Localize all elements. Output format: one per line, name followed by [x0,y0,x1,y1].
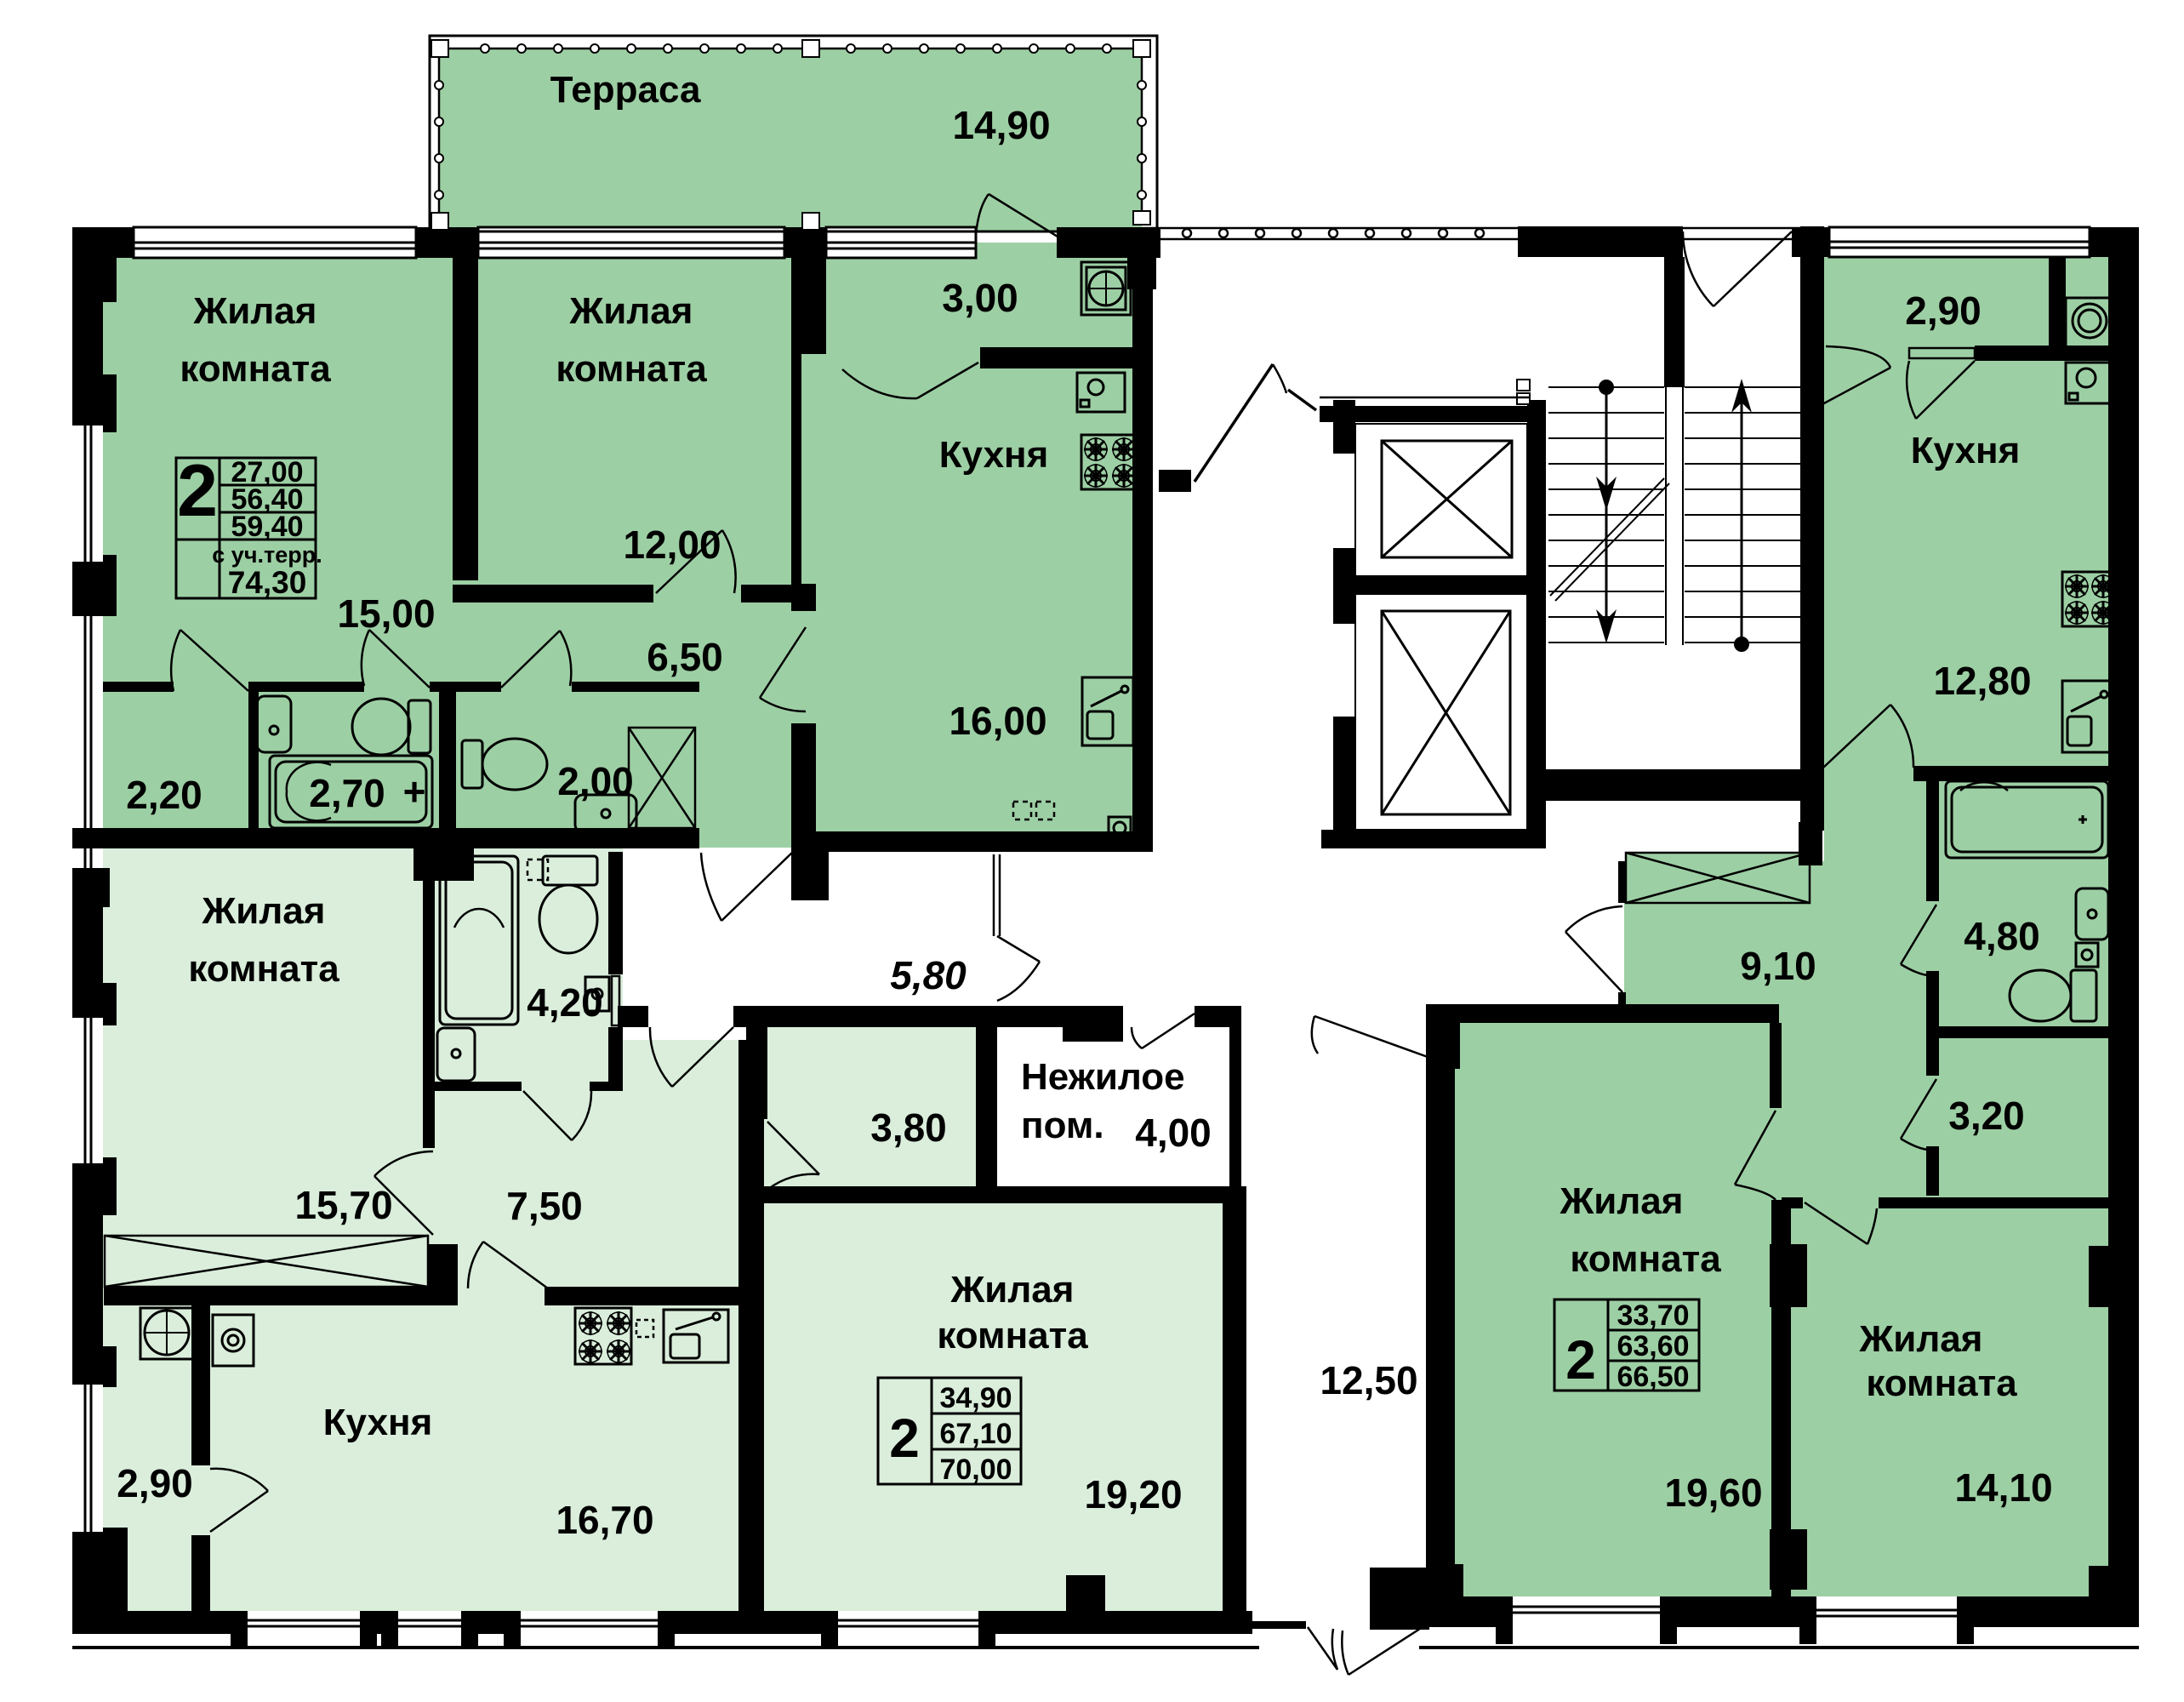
svg-text:3,20: 3,20 [1948,1094,2025,1138]
svg-text:2: 2 [1565,1329,1596,1391]
svg-text:67,10: 67,10 [939,1418,1012,1450]
svg-text:пом.: пом. [1021,1105,1104,1146]
svg-text:с уч.терр.: с уч.терр. [212,542,322,568]
svg-text:19,60: 19,60 [1664,1471,1762,1515]
svg-text:2,70: 2,70 [309,771,385,815]
svg-text:комната: комната [1866,1362,2017,1404]
svg-text:16,70: 16,70 [556,1498,653,1542]
svg-text:Кухня: Кухня [939,434,1049,476]
svg-text:70,00: 70,00 [939,1454,1012,1486]
svg-text:Жилая: Жилая [193,290,317,332]
svg-text:12,80: 12,80 [1933,659,2031,703]
svg-text:Кухня: Кухня [323,1402,433,1443]
svg-text:Жилая: Жилая [950,1269,1075,1311]
svg-text:Жилая: Жилая [1560,1180,1684,1222]
svg-text:9,10: 9,10 [1740,944,1816,988]
svg-text:63,60: 63,60 [1617,1330,1689,1362]
svg-text:2,00: 2,00 [557,759,634,803]
svg-text:комната: комната [937,1315,1088,1356]
svg-text:33,70: 33,70 [1617,1299,1689,1332]
svg-text:3,00: 3,00 [942,276,1018,320]
svg-text:комната: комната [180,348,331,390]
svg-text:Жилая: Жилая [1859,1318,1983,1360]
svg-text:4,00: 4,00 [1135,1111,1212,1155]
svg-text:15,00: 15,00 [337,591,435,636]
svg-text:Жилая: Жилая [569,290,693,332]
svg-text:14,10: 14,10 [1954,1465,2052,1510]
svg-text:Нежилое: Нежилое [1021,1056,1185,1098]
svg-text:Терраса: Терраса [550,69,701,111]
svg-text:2,20: 2,20 [126,773,202,817]
svg-text:комната: комната [188,948,339,990]
svg-text:4,80: 4,80 [1964,914,2040,958]
svg-text:66,50: 66,50 [1617,1361,1689,1393]
svg-text:15,70: 15,70 [294,1183,392,1227]
svg-text:2,90: 2,90 [1905,288,1982,333]
svg-text:2,90: 2,90 [117,1461,193,1505]
svg-text:12,00: 12,00 [623,523,721,567]
svg-text:комната: комната [556,348,707,390]
svg-text:+: + [403,769,426,814]
svg-text:12,50: 12,50 [1320,1358,1417,1402]
svg-text:14,90: 14,90 [952,103,1050,147]
svg-text:Кухня: Кухня [1911,430,2021,471]
svg-text:4,20: 4,20 [527,980,603,1025]
svg-text:2: 2 [177,450,218,532]
svg-text:6,50: 6,50 [647,635,723,679]
svg-text:19,20: 19,20 [1084,1472,1182,1516]
svg-text:16,00: 16,00 [949,699,1046,743]
svg-text:комната: комната [1570,1238,1721,1280]
svg-text:7,50: 7,50 [506,1184,583,1228]
svg-text:34,90: 34,90 [939,1382,1012,1414]
svg-text:74,30: 74,30 [228,565,307,600]
svg-text:2: 2 [889,1408,920,1469]
svg-text:5,80: 5,80 [890,953,967,997]
svg-text:59,40: 59,40 [231,511,303,543]
svg-text:Жилая: Жилая [202,890,326,932]
svg-text:3,80: 3,80 [870,1105,947,1150]
